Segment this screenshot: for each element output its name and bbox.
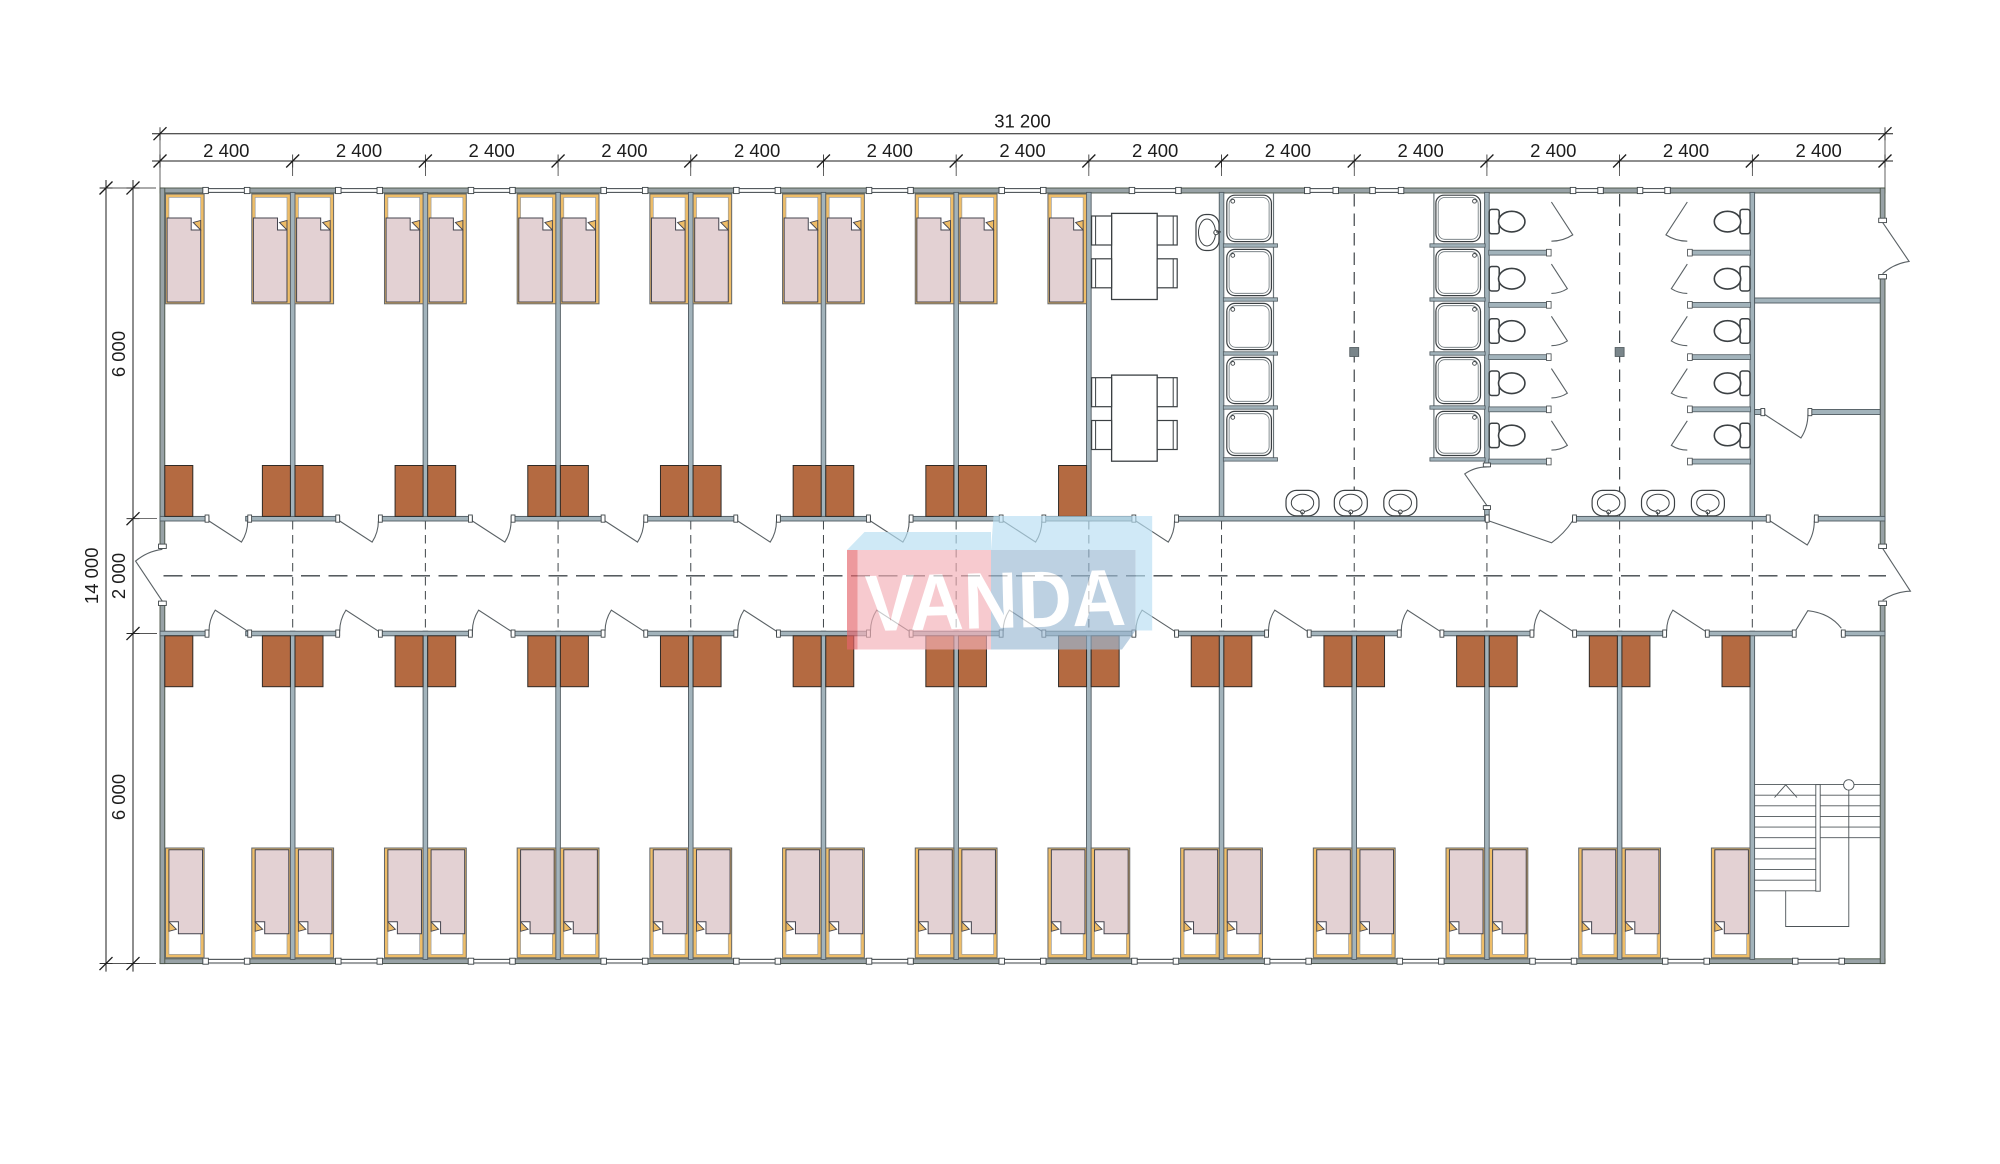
svg-text:2 400: 2 400 [999, 140, 1045, 161]
svg-text:2 400: 2 400 [469, 140, 515, 161]
svg-text:2 400: 2 400 [203, 140, 249, 161]
svg-text:31 200: 31 200 [994, 111, 1051, 132]
svg-text:14 000: 14 000 [81, 548, 102, 605]
svg-text:2 400: 2 400 [1796, 140, 1842, 161]
svg-text:2 400: 2 400 [867, 140, 913, 161]
svg-text:6 000: 6 000 [108, 774, 129, 820]
svg-text:2 400: 2 400 [1132, 140, 1178, 161]
svg-text:2 400: 2 400 [336, 140, 382, 161]
svg-text:2 000: 2 000 [108, 553, 129, 599]
svg-text:2 400: 2 400 [1530, 140, 1576, 161]
svg-text:2 400: 2 400 [1265, 140, 1311, 161]
svg-text:2 400: 2 400 [1663, 140, 1709, 161]
svg-text:2 400: 2 400 [601, 140, 647, 161]
svg-text:2 400: 2 400 [734, 140, 780, 161]
svg-text:VANDA: VANDA [864, 553, 1127, 648]
svg-text:2 400: 2 400 [1397, 140, 1443, 161]
svg-text:6 000: 6 000 [108, 331, 129, 377]
